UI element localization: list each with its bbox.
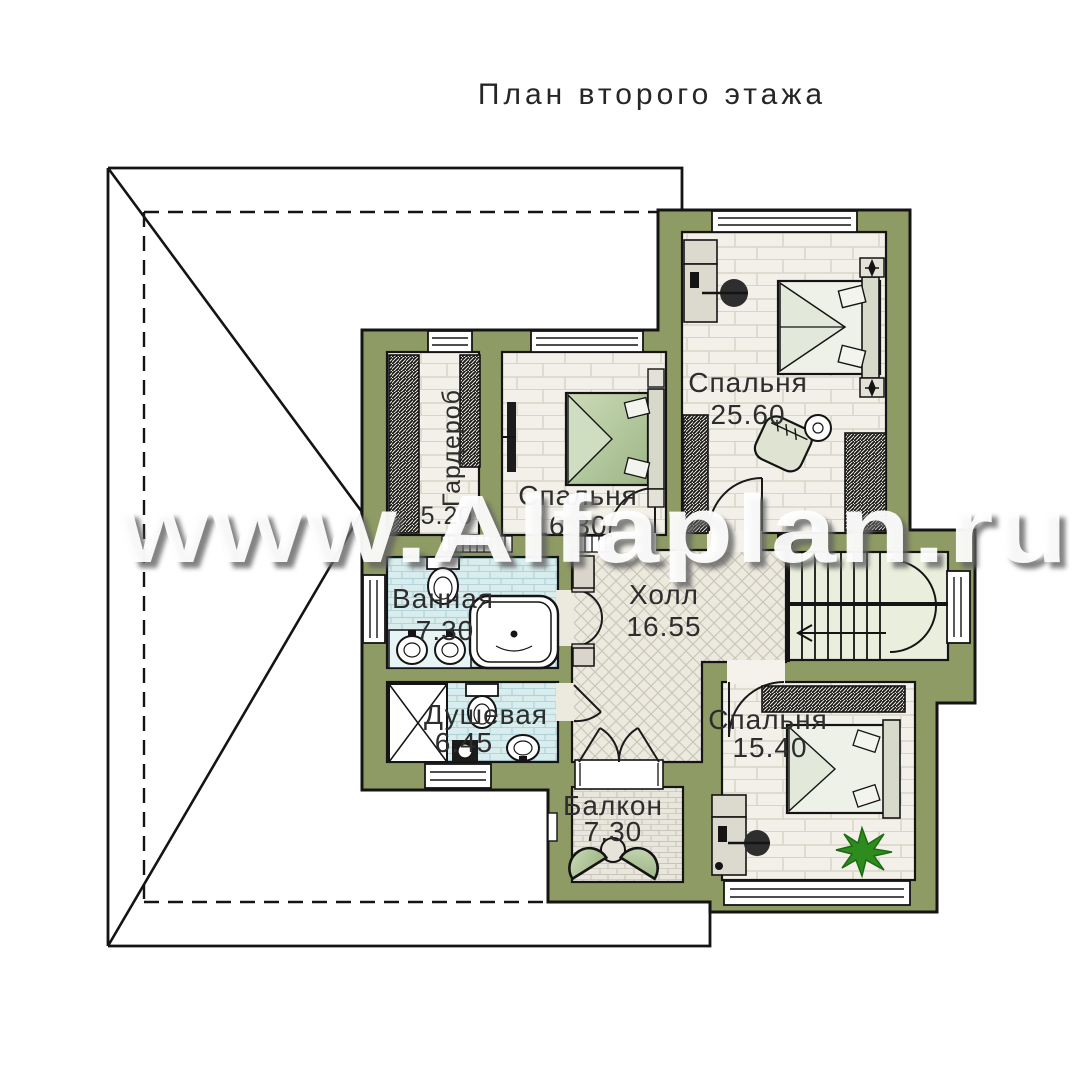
window <box>425 764 491 788</box>
bed-icon <box>778 277 880 378</box>
room-label: Душевая <box>424 699 548 730</box>
sink-icon <box>507 735 539 762</box>
headboard <box>862 277 879 378</box>
room-label: Спальня <box>688 367 808 398</box>
page-title: План второго этажа <box>478 78 826 111</box>
watermark: www.Alfaplan.ru www.Alfaplan.ru <box>117 476 1076 589</box>
nightstand-icon <box>860 378 884 397</box>
window <box>428 331 472 352</box>
room-area-label: 16.55 <box>626 611 701 642</box>
window <box>724 881 910 905</box>
room-area-label: 6.45 <box>435 727 494 758</box>
headboard <box>648 389 664 489</box>
room-area-label: 25.60 <box>710 399 785 430</box>
side-table-icon <box>805 415 831 441</box>
bed-icon <box>566 389 664 489</box>
room-area-label: 7.30 <box>416 615 475 646</box>
window <box>531 331 643 352</box>
room-area-label: 7.30 <box>584 816 643 847</box>
cabinet-icon <box>573 648 594 666</box>
window <box>712 211 857 232</box>
watermark-text: www.Alfaplan.ru <box>117 476 1070 583</box>
floor-plan-canvas: План второго этажа <box>0 0 1080 1080</box>
balcony-railing <box>548 813 557 841</box>
room-area-label: 15.40 <box>732 732 807 763</box>
balcony-threshold <box>575 760 663 789</box>
shelf-icon <box>712 795 746 817</box>
doorway <box>556 683 574 721</box>
floor-plan-page: План второго этажа <box>0 0 1080 1080</box>
doorway <box>727 660 785 684</box>
cabinet-icon <box>684 240 717 264</box>
headboard <box>883 720 900 818</box>
nightstand-icon <box>648 369 664 387</box>
desk-monitor-icon <box>718 826 727 842</box>
room-label: Спальня <box>708 704 828 735</box>
nightstand-icon <box>860 258 884 277</box>
desk-monitor-icon <box>690 272 699 288</box>
